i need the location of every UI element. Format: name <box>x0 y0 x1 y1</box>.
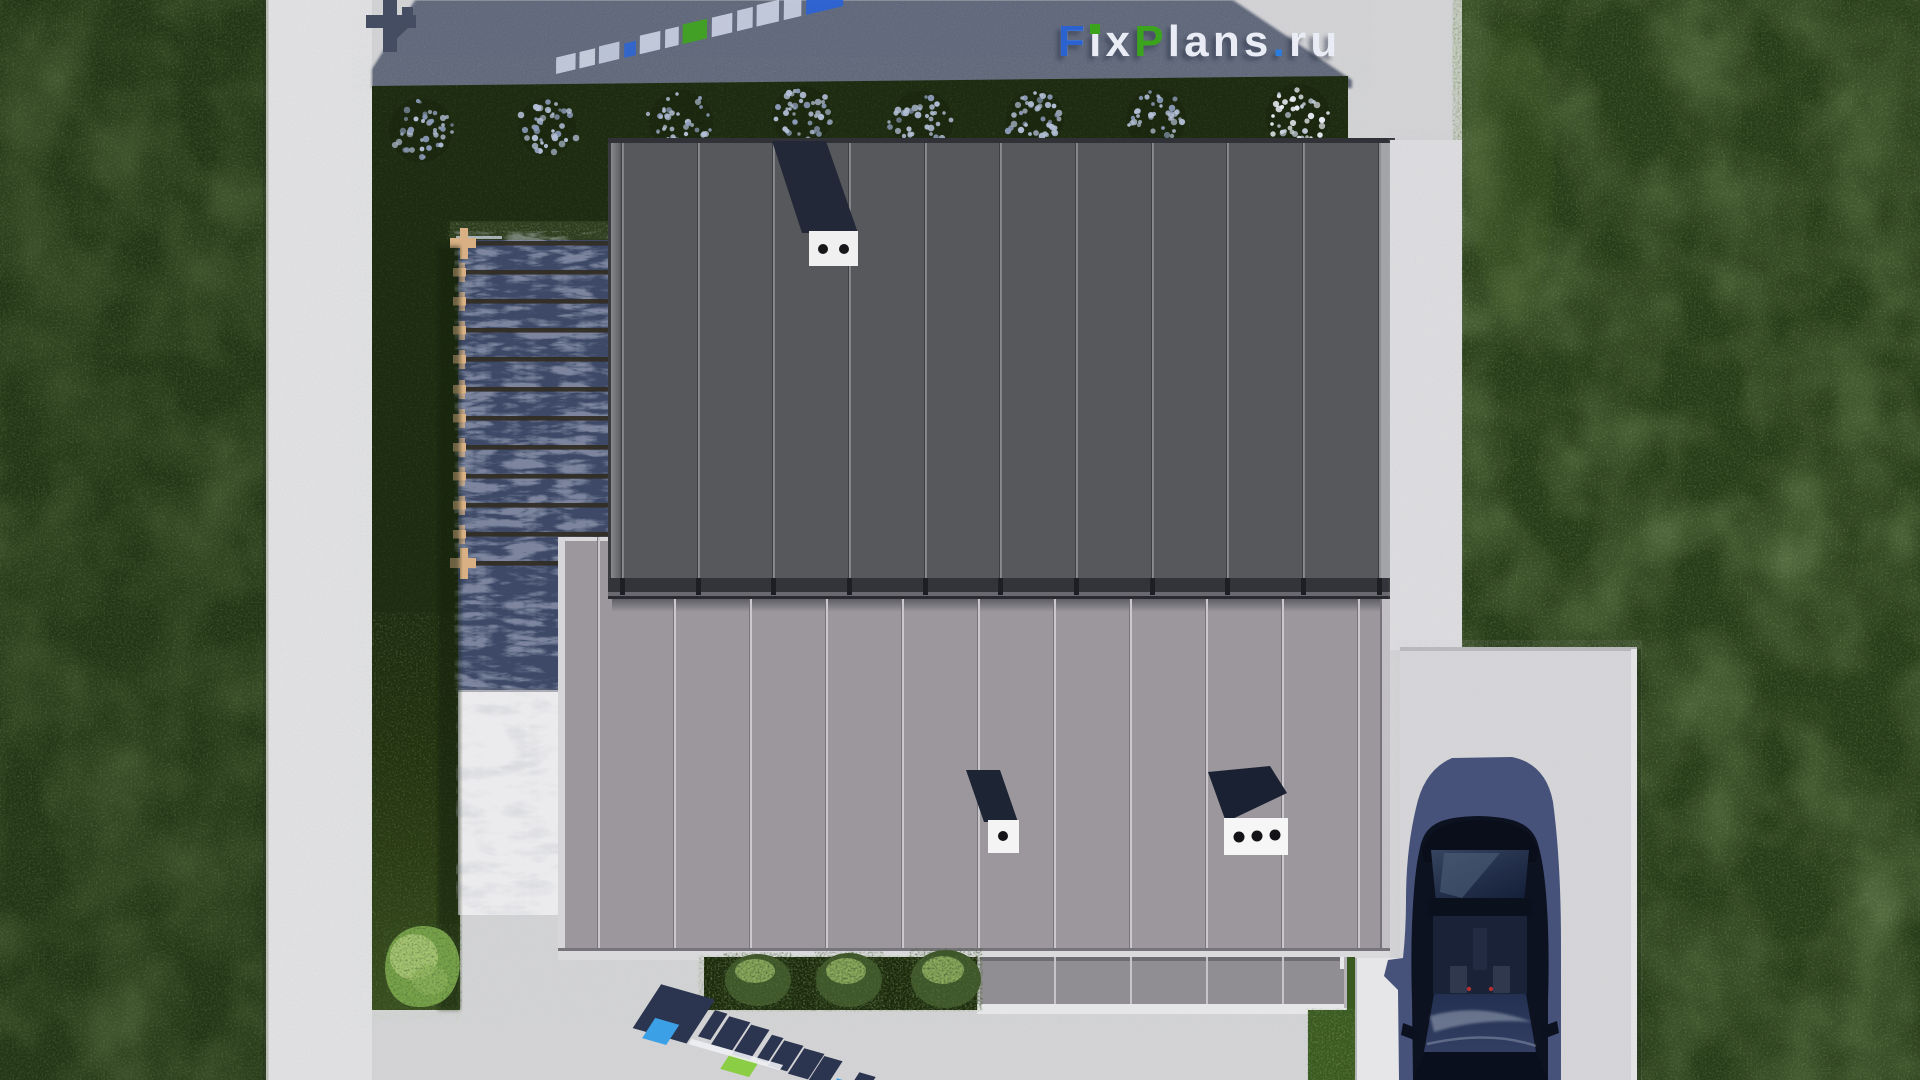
svg-text:FixPlans.ru: FixPlans.ru <box>1058 17 1341 66</box>
svg-text:F: F <box>1058 17 1089 66</box>
